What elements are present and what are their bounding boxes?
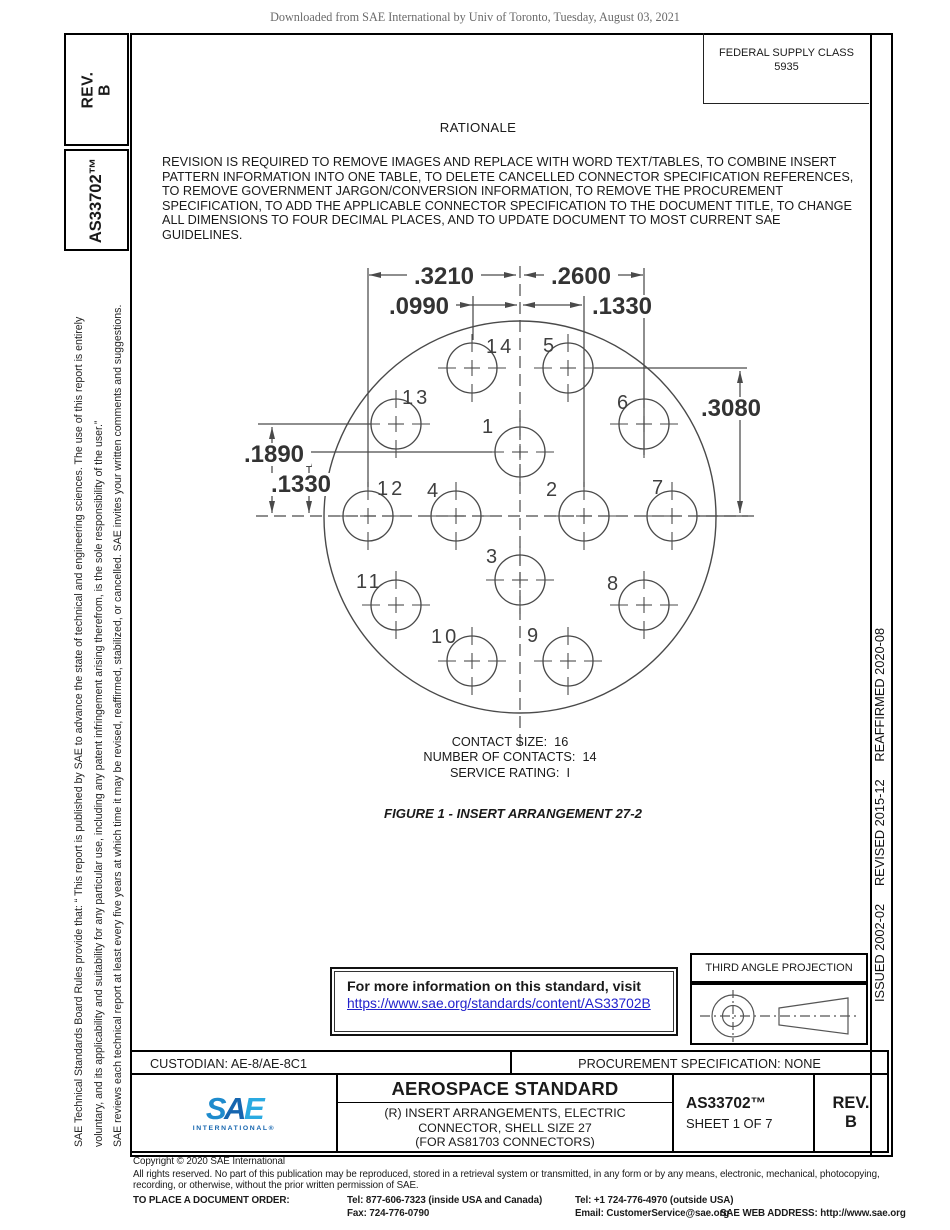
sae-logo-subtext: INTERNATIONAL®: [193, 1125, 275, 1132]
tel-inside: Tel: 877-606-7323 (inside USA and Canada…: [347, 1195, 542, 1206]
standard-url-link[interactable]: https://www.sae.org/standards/content/AS…: [347, 996, 651, 1011]
title-divider: [338, 1102, 672, 1103]
rev-label: REV.B: [79, 71, 113, 108]
email-line: Email: CustomerService@sae.org: [575, 1208, 729, 1219]
sheet-number: SHEET 1 OF 7: [686, 1116, 813, 1131]
third-angle-projection-header: THIRD ANGLE PROJECTION: [690, 953, 868, 983]
document-subtitle: (R) INSERT ARRANGEMENTS, ELECTRIC CONNEC…: [338, 1106, 672, 1150]
revision-value: B: [845, 1113, 857, 1132]
figure-caption: FIGURE 1 - INSERT ARRANGEMENT 27-2: [130, 806, 896, 821]
procurement-cell: PROCUREMENT SPECIFICATION: NONE: [512, 1052, 887, 1075]
rationale-heading: RATIONALE: [130, 120, 826, 135]
custodian-cell: CUSTODIAN: AE-8/AE-8C1: [132, 1052, 512, 1075]
rationale-body: REVISION IS REQUIRED TO REMOVE IMAGES AN…: [162, 155, 862, 243]
revision-cell: REV. B: [815, 1075, 887, 1151]
document-type-cell: AEROSPACE STANDARD (R) INSERT ARRANGEMEN…: [338, 1075, 674, 1151]
third-angle-projection-box: [690, 983, 868, 1045]
rev-box: REV.B: [64, 33, 129, 146]
revision-label: REV.: [833, 1094, 870, 1113]
tel-outside: Tel: +1 724-776-4970 (outside USA): [575, 1195, 733, 1206]
sae-logo-cell: SAE INTERNATIONAL®: [132, 1075, 338, 1151]
more-info-inner: For more information on this standard, v…: [334, 971, 674, 1032]
document-page: { "page": { "watermark": "Downloaded fro…: [0, 0, 950, 1230]
third-angle-projection-symbol: [692, 985, 866, 1043]
title-block: SAE INTERNATIONAL® AEROSPACE STANDARD (R…: [130, 1073, 889, 1153]
custodian-row: CUSTODIAN: AE-8/AE-8C1 PROCUREMENT SPECI…: [130, 1050, 889, 1075]
federal-supply-class-box: FEDERAL SUPPLY CLASS 5935: [703, 33, 869, 104]
sae-logo: SAE: [206, 1095, 262, 1123]
aerospace-standard-title: AEROSPACE STANDARD: [338, 1075, 672, 1100]
doc-number-box: AS33702™: [64, 149, 129, 251]
third-angle-projection-label: THIRD ANGLE PROJECTION: [705, 962, 852, 974]
fax-line: Fax: 724-776-0790: [347, 1208, 429, 1219]
rights-line: All rights reserved. No part of this pub…: [133, 1169, 880, 1191]
copyright-line: Copyright © 2020 SAE International: [133, 1156, 285, 1167]
doc-number-vertical: AS33702™: [87, 157, 106, 242]
doc-number: AS33702™: [686, 1095, 813, 1113]
more-info-text: For more information on this standard, v…: [347, 979, 673, 995]
order-label: TO PLACE A DOCUMENT ORDER:: [133, 1195, 290, 1206]
figure-notes: CONTACT SIZE: 16 NUMBER OF CONTACTS: 14 …: [130, 735, 890, 781]
web-address: SAE WEB ADDRESS: http://www.sae.org: [720, 1208, 906, 1219]
more-info-box: For more information on this standard, v…: [330, 967, 678, 1036]
download-watermark: Downloaded from SAE International by Uni…: [0, 10, 950, 25]
sae-boilerplate-vertical: SAE Technical Standards Board Rules prov…: [70, 305, 129, 1147]
doc-number-cell: AS33702™ SHEET 1 OF 7: [674, 1075, 815, 1151]
